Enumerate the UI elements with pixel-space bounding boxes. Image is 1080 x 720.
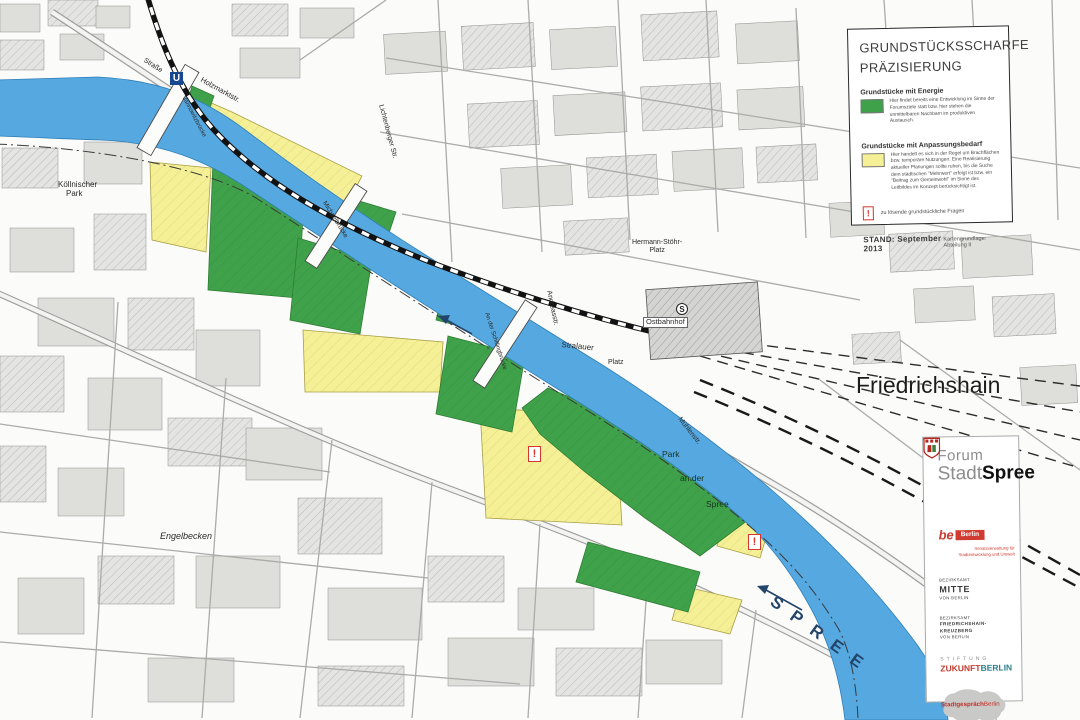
- legend-issue-text: zu lösende grundstückliche Fragen: [881, 209, 965, 217]
- issue-marker: !: [528, 446, 541, 462]
- be-berlin-logo: be Berlin Senatsverwaltung für Stadtentw…: [938, 526, 1011, 559]
- hermann-stoehr-platz-label: Hermann-Stöhr- Platz: [632, 239, 682, 255]
- forum-stadtspree-panel: Forum StadtSpree be Berlin Senatsverwalt…: [922, 435, 1023, 702]
- map-source: Kartengrundlage: Abteilung II: [943, 236, 1001, 249]
- ostbahnhof-label: Ostbahnhof: [643, 317, 688, 328]
- legend-adaptation-item: Hier handelt es sich in der Regel um Bra…: [862, 150, 1001, 193]
- legend-footer: STAND: September 2013 Kartengrundlage: A…: [863, 233, 1001, 254]
- stadtspree-title: StadtSpree: [938, 462, 1011, 485]
- adaptation-swatch: [862, 153, 885, 167]
- stiftung-zukunft-berlin-logo: STIFTUNG ZUKUNFTBERLIN: [940, 655, 1013, 673]
- legend-adaptation-text: Hier handelt es sich in der Regel um Bra…: [891, 150, 1001, 192]
- legend-energy-heading: Grundstücke mit Energie: [860, 87, 998, 97]
- koellnischer-park-label: Köllnischer Park: [58, 180, 97, 198]
- stand-date: STAND: September 2013: [863, 234, 943, 254]
- ubahn-icon: U: [170, 72, 183, 85]
- senatsverwaltung-text: Senatsverwaltung für Stadtentwicklung un…: [955, 545, 1015, 559]
- energy-swatch: [860, 99, 883, 113]
- park-an-der-spree-label-3: Spree: [706, 500, 729, 510]
- park-an-der-spree-label-1: Park: [662, 450, 679, 460]
- platz-label: Platz: [608, 359, 624, 367]
- park-an-der-spree-label-2: an der: [680, 474, 704, 484]
- friedrichshain-kreuzberg-crest-icon: [923, 437, 940, 458]
- legend-energy-item: Hier findet bereits eine Entwicklung im …: [860, 97, 999, 126]
- stadtgespraech-berlin-logo: StadtgesprächBerlin: [937, 684, 1011, 691]
- legend-adaptation-heading: Grundstücke mit Anpassungsbedarf: [861, 140, 999, 150]
- issue-marker-icon: !: [863, 207, 874, 221]
- sbahn-icon: S: [676, 303, 688, 315]
- issue-marker: !: [748, 534, 761, 550]
- district-label: Friedrichshain: [856, 372, 1000, 398]
- legend-title: GRUNDSTÜCKSSCHARFE PRÄZISIERUNG: [859, 36, 998, 79]
- bezirksamt-mitte-logo: BEZIRKSAMT MITTE VON BERLIN: [939, 576, 1012, 601]
- bezirksamt-friedrichshain-kreuzberg-logo: BEZIRKSAMT FRIEDRICHSHAIN- KREUZBERG VON…: [940, 615, 1013, 641]
- legend-panel: GRUNDSTÜCKSSCHARFE PRÄZISIERUNG Grundstü…: [847, 25, 1013, 225]
- scanned-map-page: Friedrichshain SPREE Engelbecken Köllnis…: [0, 0, 1080, 720]
- engelbecken-label: Engelbecken: [160, 531, 212, 541]
- legend-issue-item: ! zu lösende grundstückliche Fragen: [863, 204, 1001, 221]
- legend-energy-text: Hier findet bereits eine Entwicklung im …: [889, 97, 999, 126]
